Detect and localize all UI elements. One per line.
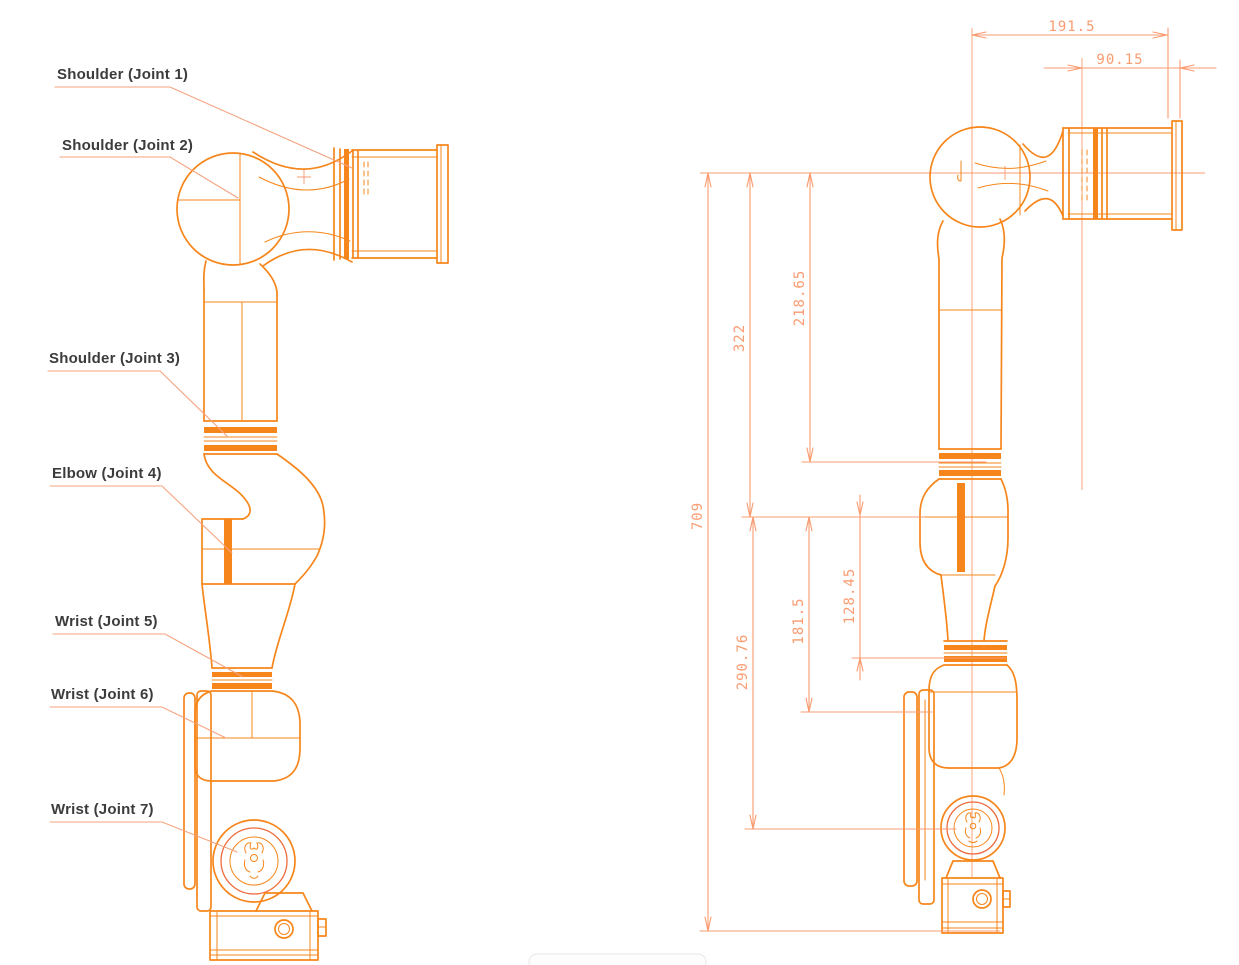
dimension-elbow-to-joint6: 181.5 xyxy=(791,517,932,712)
left-robot-outline xyxy=(177,145,448,960)
joint-label-6: Wrist (Joint 6) xyxy=(50,686,226,738)
joint-label-2: Shoulder (Joint 2) xyxy=(60,137,238,198)
joint-label-text: Shoulder (Joint 3) xyxy=(49,350,180,367)
right-robot-outline xyxy=(904,121,1182,933)
joint-label-4: Elbow (Joint 4) xyxy=(50,465,232,553)
joint-labels: Shoulder (Joint 1) Shoulder (Joint 2) Sh… xyxy=(48,66,352,852)
joint-label-text: Elbow (Joint 4) xyxy=(52,465,162,482)
right-view: 191.5 90.15 218.65 322 xyxy=(690,19,1216,933)
joint-label-3: Shoulder (Joint 3) xyxy=(48,350,228,437)
joint-label-text: Wrist (Joint 5) xyxy=(55,613,158,630)
dimension-elbow-to-joint5: 128.45 xyxy=(842,495,1006,680)
dimension-value: 322 xyxy=(732,324,748,352)
wrist-logo-icon xyxy=(244,843,263,878)
dimension-value: 181.5 xyxy=(791,597,807,644)
dimension-value: 218.65 xyxy=(792,270,808,327)
joint-label-text: Shoulder (Joint 1) xyxy=(57,66,188,83)
dimension-value: 128.45 xyxy=(842,568,858,625)
leader-line xyxy=(50,822,237,852)
centerlines xyxy=(700,28,1205,877)
technical-drawing-canvas: Shoulder (Joint 1) Shoulder (Joint 2) Sh… xyxy=(0,0,1239,965)
dimension-shoulder-to-elbow: 322 xyxy=(732,173,924,517)
dimension-value: 709 xyxy=(690,502,706,530)
dimension-overall-height: 709 xyxy=(690,173,1000,931)
dimension-value: 290.76 xyxy=(735,634,751,691)
dimension-elbow-to-wrist: 290.76 xyxy=(735,517,956,829)
dimension-value: 90.15 xyxy=(1096,52,1143,68)
leader-line xyxy=(60,157,238,198)
leader-line xyxy=(55,87,352,168)
leader-line xyxy=(53,634,243,677)
joint-label-7: Wrist (Joint 7) xyxy=(50,801,237,852)
page-artifact xyxy=(529,954,706,965)
dimension-flange-offset: 90.15 xyxy=(1044,52,1216,118)
dimension-shoulder-to-joint3: 218.65 xyxy=(792,173,986,462)
left-view: Shoulder (Joint 1) Shoulder (Joint 2) Sh… xyxy=(48,66,448,960)
dimension-value: 191.5 xyxy=(1048,19,1095,35)
joint-label-text: Wrist (Joint 6) xyxy=(51,686,154,703)
joint-label-text: Wrist (Joint 7) xyxy=(51,801,154,818)
leader-line xyxy=(50,707,226,738)
leader-line xyxy=(48,371,228,437)
wrist-logo-icon xyxy=(965,813,980,843)
joint-label-text: Shoulder (Joint 2) xyxy=(62,137,193,154)
